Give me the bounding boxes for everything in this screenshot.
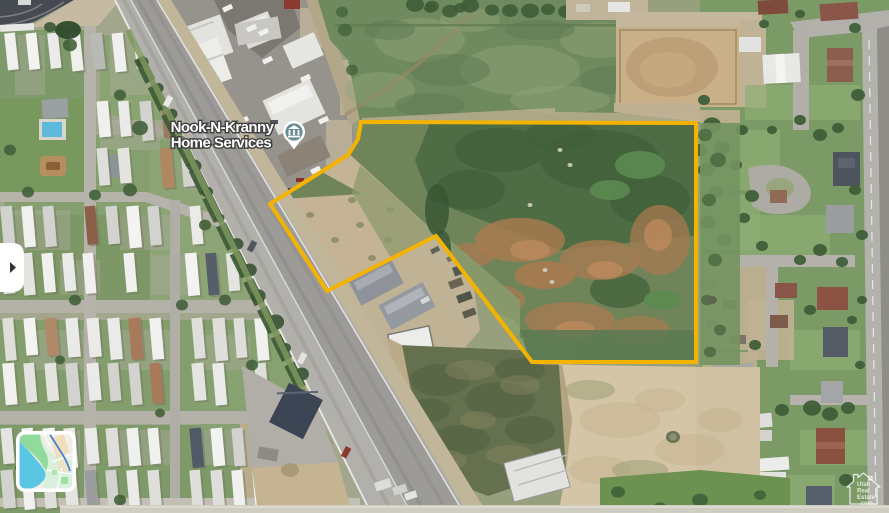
svg-text:Home Services: Home Services <box>171 135 272 152</box>
svg-text:Nook-N-Kranny: Nook-N-Kranny <box>171 119 275 136</box>
svg-text:Real: Real <box>857 489 870 495</box>
svg-text:.com: .com <box>859 501 873 507</box>
svg-text:Utah: Utah <box>857 482 871 488</box>
